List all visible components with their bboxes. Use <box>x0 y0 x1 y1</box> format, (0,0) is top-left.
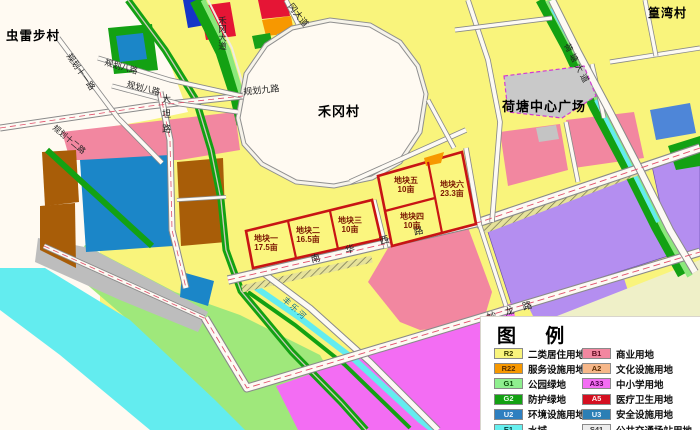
legend-column-left: R2二类居住用地 R22服务设施用地 G1公园绿地 G2防护绿地 U2环境设施用… <box>494 346 585 430</box>
legend-swatch: S41 <box>582 424 611 430</box>
legend-item-label: 公共交通场站用地 <box>616 423 692 430</box>
legend-item: A33中小学用地 <box>582 376 692 391</box>
zone-utility-blue <box>80 155 173 252</box>
legend-swatch: A33 <box>582 378 611 389</box>
legend-panel: 图 例 R2二类居住用地 R22服务设施用地 G1公园绿地 G2防护绿地 U2环… <box>480 316 700 430</box>
legend-item-label: 水域 <box>528 423 547 430</box>
legend-item: G2防护绿地 <box>494 392 585 407</box>
label-huangwan-village: 篁湾村 <box>648 7 687 19</box>
planning-map-screenshot: 虫雷步村 禾冈村 篁湾村 荷塘中心广场 冈大道 禾冈大道 荷塘大道 规划九路 规… <box>0 0 700 430</box>
legend-swatch: G2 <box>494 394 523 405</box>
legend-item: G1公园绿地 <box>494 376 585 391</box>
legend-swatch: A2 <box>582 363 611 374</box>
legend-column-right: B1商业用地 A2文化设施用地 A33中小学用地 A5医疗卫生用地 U3安全设施… <box>582 346 692 430</box>
plot-label-5: 地块五10亩 <box>385 176 427 194</box>
legend-item: B1商业用地 <box>582 346 692 361</box>
legend-item-label: 服务设施用地 <box>528 362 585 376</box>
label-datan-road: 大坦路 <box>161 94 170 166</box>
plot-label-6: 地块六23.3亩 <box>431 180 473 198</box>
legend-item-label: 医疗卫生用地 <box>616 392 673 406</box>
legend-item-label: 防护绿地 <box>528 392 566 406</box>
legend-item: U2环境设施用地 <box>494 407 585 422</box>
legend-swatch: U3 <box>582 409 611 420</box>
legend-item-label: 中小学用地 <box>616 377 664 391</box>
legend-item: A5医疗卫生用地 <box>582 392 692 407</box>
label-hegang-village: 禾冈村 <box>318 105 360 118</box>
plot-label-2: 地块二16.5亩 <box>287 226 329 244</box>
legend-item: R22服务设施用地 <box>494 361 585 376</box>
legend-item: U3安全设施用地 <box>582 407 692 422</box>
label-hetang-plaza: 荷塘中心广场 <box>502 100 586 113</box>
legend-item: E1水域 <box>494 422 585 430</box>
legend-swatch: U2 <box>494 409 523 420</box>
legend-swatch: A5 <box>582 394 611 405</box>
legend-item-label: 文化设施用地 <box>616 362 673 376</box>
legend-item-label: 二类居住用地 <box>528 347 585 361</box>
plot-label-1: 地块一17.5亩 <box>245 234 287 252</box>
legend-title: 图 例 <box>497 321 576 348</box>
legend-swatch: R22 <box>494 363 523 374</box>
plot-label-3: 地块三10亩 <box>329 216 371 234</box>
legend-swatch: B1 <box>582 348 611 359</box>
legend-item-label: 公园绿地 <box>528 377 566 391</box>
legend-item-label: 商业用地 <box>616 347 654 361</box>
label-leibu-village: 虫雷步村 <box>6 30 60 43</box>
legend-swatch: R2 <box>494 348 523 359</box>
legend-swatch: G1 <box>494 378 523 389</box>
legend-item: R2二类居住用地 <box>494 346 585 361</box>
legend-item: A2文化设施用地 <box>582 361 692 376</box>
legend-item: S41公共交通场站用地 <box>582 422 692 430</box>
legend-item-label: 环境设施用地 <box>528 407 585 421</box>
legend-item-label: 安全设施用地 <box>616 407 673 421</box>
legend-swatch: E1 <box>494 424 523 430</box>
plot-label-4: 地块四10亩 <box>391 212 433 230</box>
label-hegang-avenue: 禾冈大道 <box>218 16 227 78</box>
